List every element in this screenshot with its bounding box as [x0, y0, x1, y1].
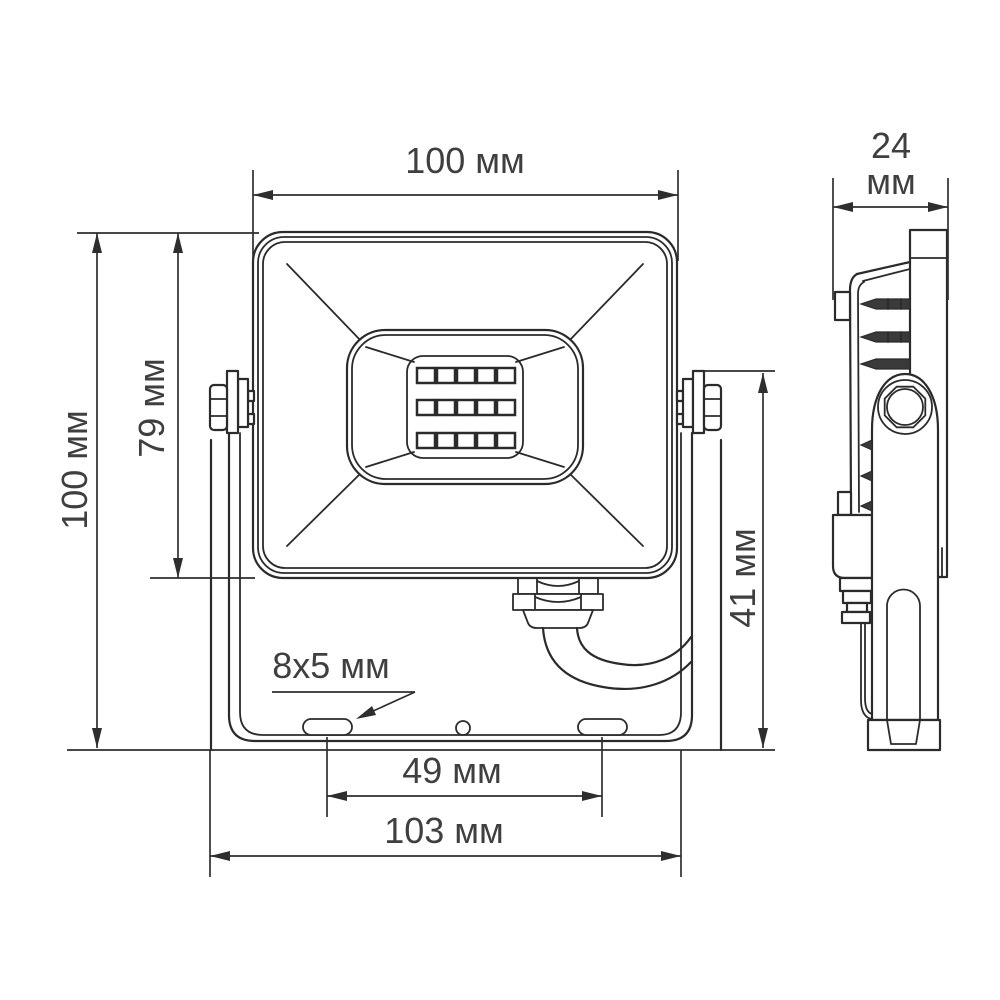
side-front-tab [835, 292, 850, 320]
dim-body-height-label: 79 мм [131, 358, 172, 458]
side-bracket-arm [861, 374, 940, 750]
technical-drawing-page: 100 мм 100 мм 79 мм 41 мм [0, 0, 1000, 1000]
dim-depth-value: 24 [871, 125, 911, 166]
dim-total-height-label: 100 мм [54, 410, 95, 530]
dim-slot-size: 8x5 мм [272, 645, 415, 719]
dim-slot-spacing: 49 мм [327, 737, 602, 817]
side-view [833, 230, 947, 750]
dim-slot-size-label: 8x5 мм [272, 645, 390, 686]
floodlight-dimension-drawing: 100 мм 100 мм 79 мм 41 мм [0, 0, 1000, 1000]
mounting-slot-right [578, 719, 627, 735]
power-cable [543, 628, 691, 689]
side-bracket-foot [868, 720, 940, 750]
dim-overall-width-label: 103 мм [384, 810, 504, 851]
dim-top-width-label: 100 мм [405, 140, 525, 181]
dim-depth-unit: мм [866, 161, 916, 202]
dim-slot-spacing-label: 49 мм [402, 750, 502, 791]
mounting-slots [303, 719, 627, 735]
cooling-fins [861, 299, 910, 369]
dim-bracket-height-label: 41 мм [722, 528, 763, 628]
side-cable [861, 623, 872, 719]
side-cable-gland [840, 578, 874, 623]
pivot-bolt-right [677, 371, 721, 433]
cable-gland [513, 578, 603, 628]
mounting-slot-left [303, 719, 352, 735]
pivot-bolt-left [210, 371, 254, 433]
center-hole [456, 721, 470, 735]
